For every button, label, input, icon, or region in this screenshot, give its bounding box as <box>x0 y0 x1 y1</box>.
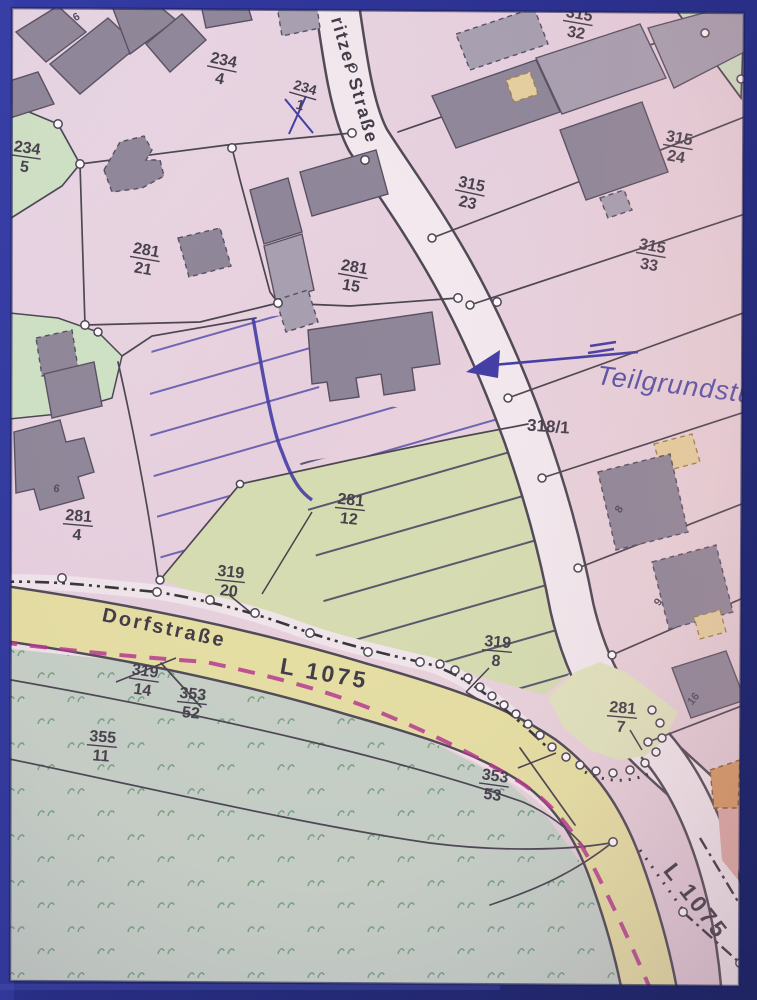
map-paper: 234 4 234 1 315 32 234 5 315 23 315 24 2… <box>0 0 757 1000</box>
cadastral-map-photo: 234 4 234 1 315 32 234 5 315 23 315 24 2… <box>0 0 757 1000</box>
photo-warm-tint <box>10 8 744 986</box>
map-canvas: 234 4 234 1 315 32 234 5 315 23 315 24 2… <box>0 0 757 1000</box>
